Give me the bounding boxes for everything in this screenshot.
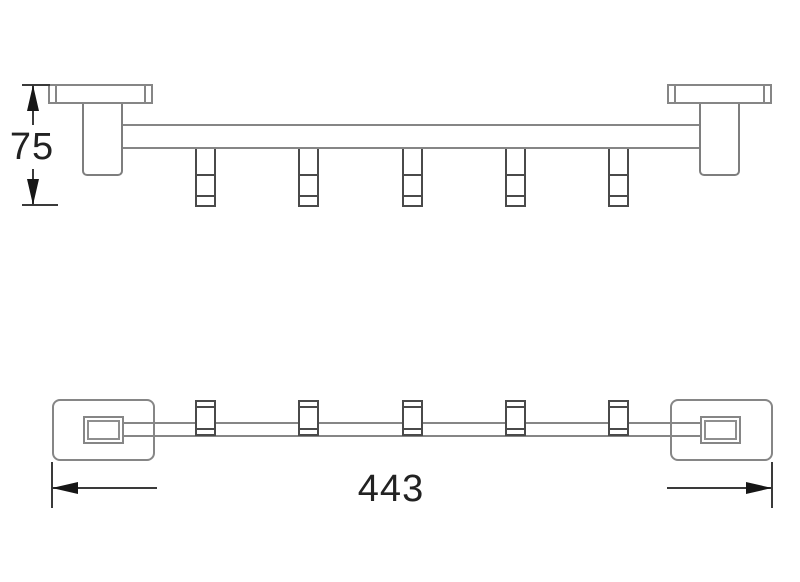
technical-drawing: 75 443	[0, 0, 800, 582]
hook-side-4	[505, 149, 526, 207]
hook-side-3	[402, 149, 423, 207]
left-bracket-plate-side	[48, 84, 153, 104]
height-dimension-label: 75	[7, 125, 57, 169]
left-bracket-post-side	[82, 103, 123, 176]
plate-edge-line	[144, 86, 146, 102]
hook-plan-4	[505, 400, 526, 436]
right-bracket-post-side	[699, 103, 740, 176]
arrow-right-icon	[746, 482, 772, 494]
hook-side-1	[195, 149, 216, 207]
plate-edge-line	[55, 86, 57, 102]
post-inner-line	[704, 420, 737, 440]
arrow-left-icon	[52, 482, 78, 494]
plate-edge-line	[763, 86, 765, 102]
plate-edge-line	[674, 86, 676, 102]
right-bracket-post-plan	[700, 416, 741, 444]
right-bracket-plate-side	[667, 84, 772, 104]
rail-side-view	[123, 124, 699, 149]
hook-plan-1	[195, 400, 216, 436]
length-dimension-label: 443	[355, 467, 427, 511]
hook-plan-5	[608, 400, 629, 436]
left-bracket-post-plan	[83, 416, 124, 444]
arrow-down-icon	[27, 179, 39, 205]
post-inner-line	[87, 420, 120, 440]
arrow-up-icon	[27, 85, 39, 111]
hook-plan-2	[298, 400, 319, 436]
hook-plan-3	[402, 400, 423, 436]
hook-side-2	[298, 149, 319, 207]
hook-side-5	[608, 149, 629, 207]
